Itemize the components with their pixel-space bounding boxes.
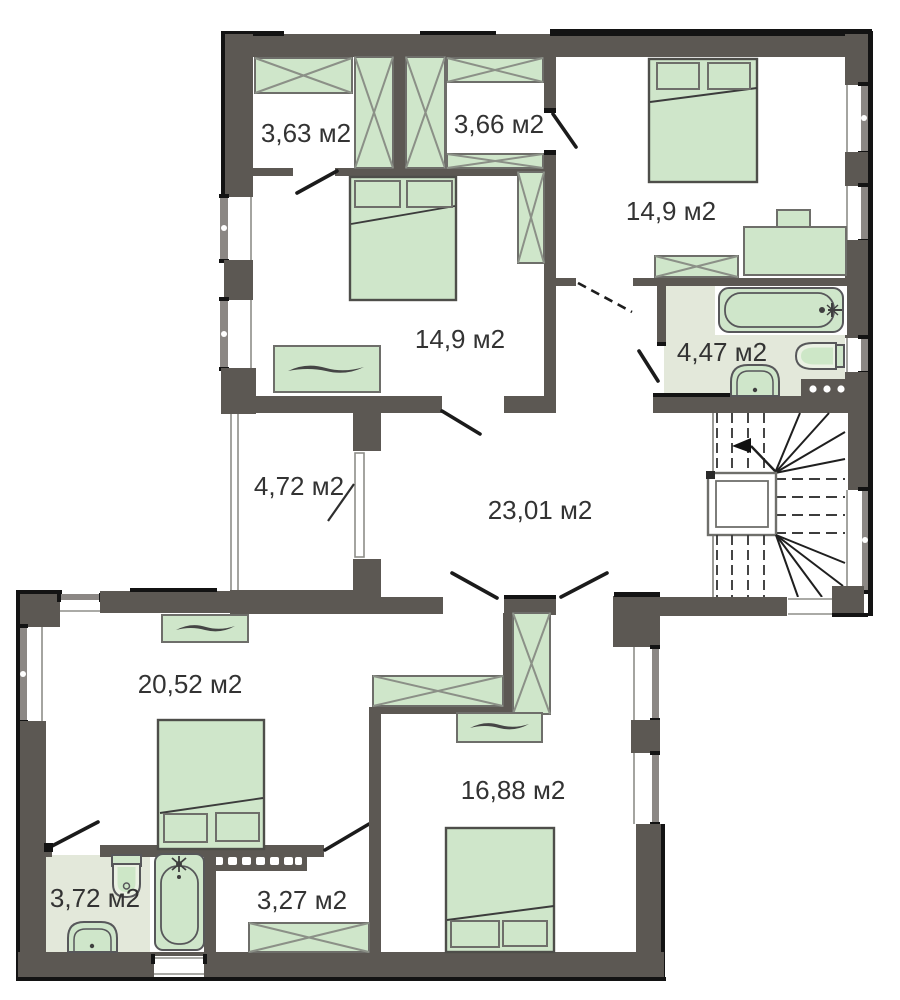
svg-text:3,72 м2: 3,72 м2: [50, 883, 140, 913]
svg-text:14,9 м2: 14,9 м2: [415, 324, 505, 354]
svg-text:4,72 м2: 4,72 м2: [254, 471, 344, 501]
svg-text:3,63 м2: 3,63 м2: [261, 118, 351, 148]
svg-text:3,27 м2: 3,27 м2: [257, 885, 347, 915]
svg-text:16,88 м2: 16,88 м2: [461, 775, 566, 805]
svg-text:4,47 м2: 4,47 м2: [677, 337, 767, 367]
svg-text:23,01 м2: 23,01 м2: [488, 495, 593, 525]
svg-text:14,9 м2: 14,9 м2: [626, 196, 716, 226]
svg-text:3,66 м2: 3,66 м2: [454, 109, 544, 139]
svg-text:20,52 м2: 20,52 м2: [138, 669, 243, 699]
